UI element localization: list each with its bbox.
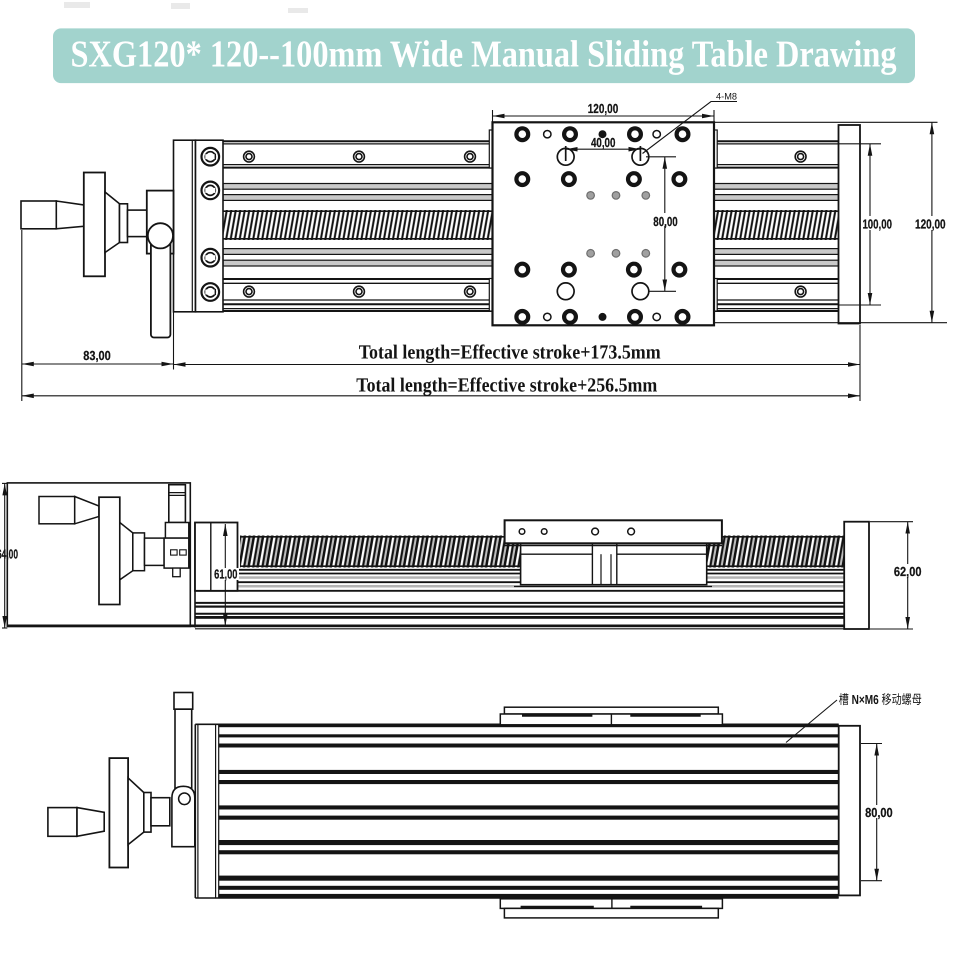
svg-text:120,00: 120,00 <box>588 101 619 116</box>
svg-text:61,00: 61,00 <box>214 566 237 581</box>
svg-text:SXG120* 120--100mm Wide Manual: SXG120* 120--100mm Wide Manual Sliding T… <box>71 34 897 76</box>
svg-text:62,00: 62,00 <box>894 564 922 579</box>
svg-text:80,00: 80,00 <box>865 805 893 820</box>
svg-text:100,00: 100,00 <box>862 217 892 232</box>
svg-text:64,00: 64,00 <box>0 547 18 562</box>
svg-text:40,00: 40,00 <box>591 135 616 150</box>
svg-text:槽 N×M6 移动螺母: 槽 N×M6 移动螺母 <box>839 692 922 707</box>
svg-text:4-M8: 4-M8 <box>716 92 737 103</box>
svg-text:Total length=Effective stroke+: Total length=Effective stroke+173.5mm <box>359 342 661 364</box>
svg-text:80,00: 80,00 <box>653 214 678 229</box>
svg-text:Total length=Effective stroke+: Total length=Effective stroke+256.5mm <box>356 375 657 397</box>
svg-text:83,00: 83,00 <box>83 348 111 363</box>
svg-text:120,00: 120,00 <box>915 217 946 232</box>
